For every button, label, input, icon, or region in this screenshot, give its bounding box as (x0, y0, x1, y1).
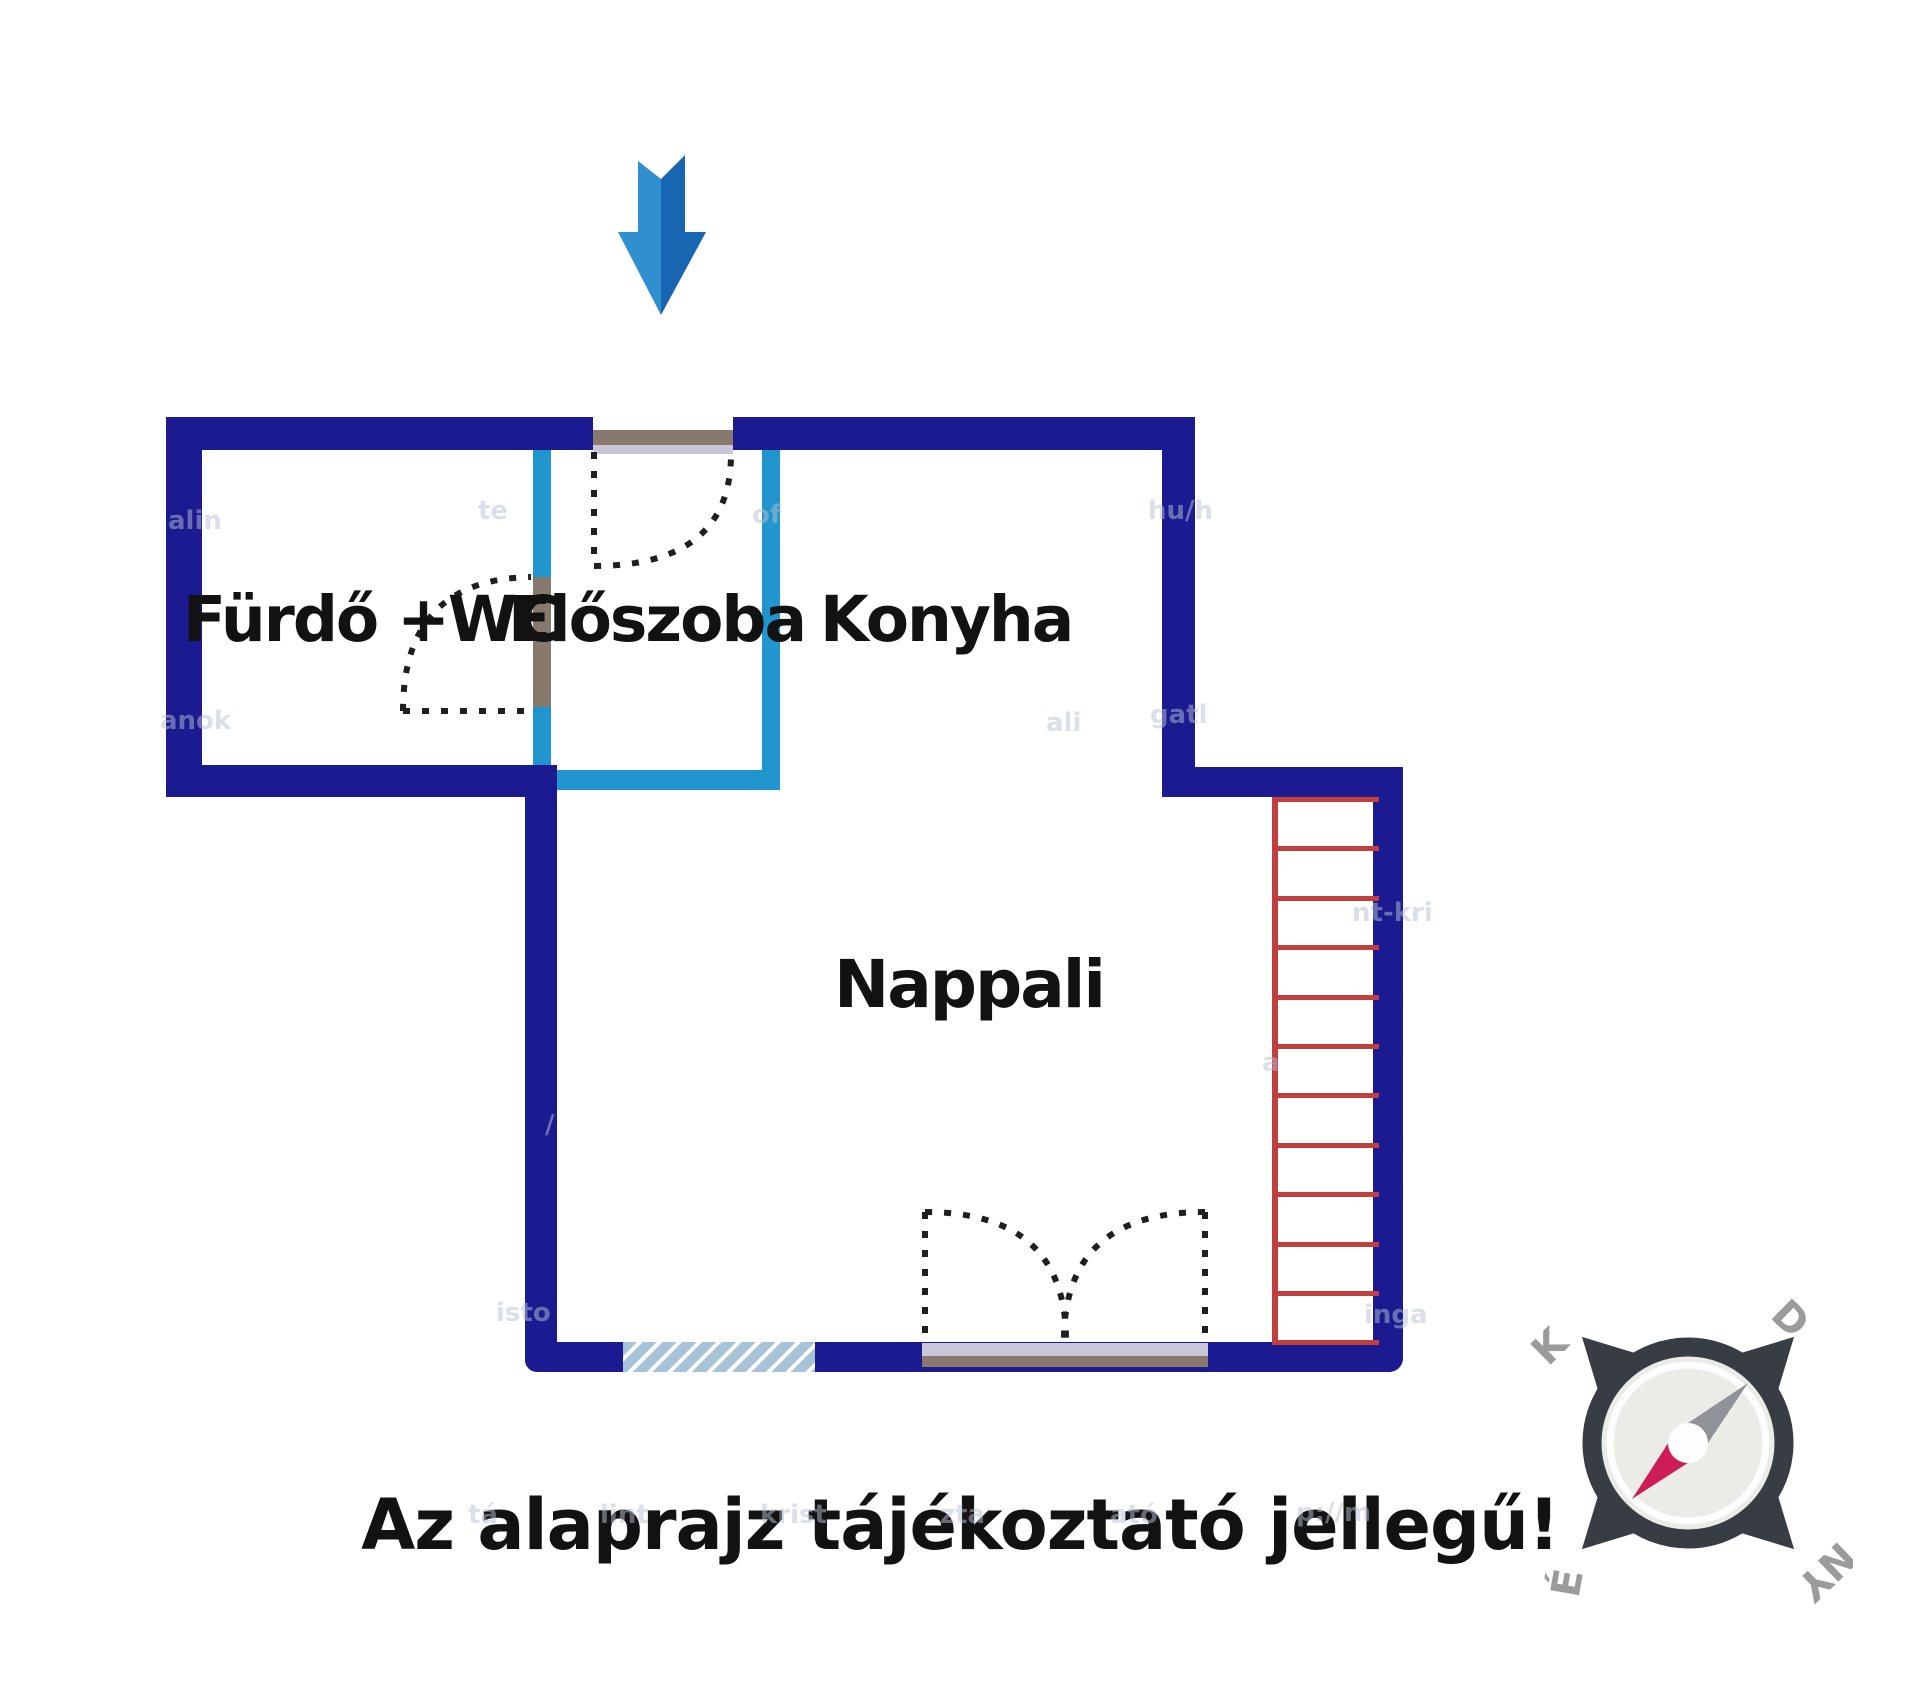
compass-letter-d: D (1762, 1291, 1818, 1347)
entrance-door-arc (594, 454, 731, 566)
room-label-nappali: Nappali (834, 952, 1104, 1018)
compass-letter-e: É (1541, 1565, 1593, 1600)
compass-icon: K D É NY (1523, 1278, 1853, 1608)
compass-letter-ny: NY (1787, 1533, 1853, 1608)
compass-letter-k: K (1523, 1318, 1579, 1374)
room-label-eloszoba: Előszoba (508, 588, 805, 651)
room-label-furdo-wc: Fürdő +WC (183, 588, 560, 651)
terrace-door-left-arc (925, 1212, 1066, 1340)
floor-plan-page: Fürdő +WC Előszoba Konyha Nappali Az ala… (0, 0, 1920, 1697)
room-label-konyha: Konyha (820, 588, 1072, 651)
terrace-door-right-arc (1064, 1212, 1205, 1340)
compass-hub (1668, 1423, 1708, 1463)
